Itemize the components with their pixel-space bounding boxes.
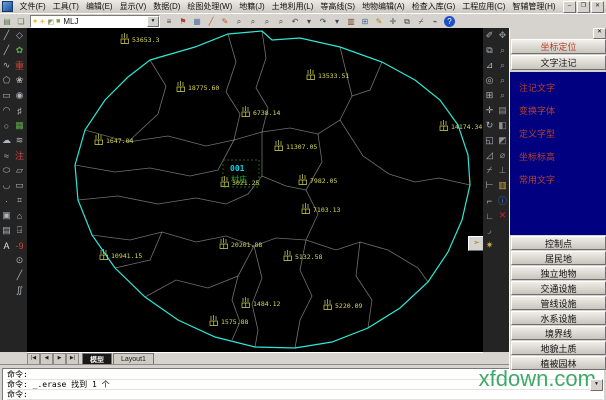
zoom-all-icon[interactable]: ⌕: [274, 15, 288, 28]
copy-icon[interactable]: ⧉: [400, 15, 414, 28]
area-label: 1575.88: [221, 318, 248, 326]
pan-icon[interactable]: ✥: [496, 28, 509, 43]
landuse-symbol-icon: [242, 106, 250, 117]
ellipse-arc-icon[interactable]: ◡: [0, 178, 13, 193]
area-label: 53653.3: [132, 36, 159, 44]
table-icon[interactable]: ⊞: [358, 15, 372, 28]
command-line: 命令:: [7, 370, 603, 380]
layer-combobox-value: MLJ: [63, 17, 78, 26]
arc-icon[interactable]: ◠: [0, 103, 13, 118]
layer-states-icon[interactable]: ❏: [14, 15, 28, 28]
erase-pencil-icon[interactable]: ✐: [483, 28, 496, 43]
area-label: 1484.12: [253, 300, 280, 308]
line-icon[interactable]: ╱: [0, 28, 13, 43]
linetype-icon[interactable]: ≡: [162, 15, 176, 28]
parcel-line: [306, 240, 428, 282]
parcel-line: [262, 176, 306, 190]
area-label: 20201.88: [231, 241, 262, 249]
slope-icon[interactable]: ╱: [13, 268, 26, 283]
shade-icon[interactable]: ◧: [496, 118, 509, 133]
block-insert-icon[interactable]: ▣: [0, 208, 13, 223]
render-icon[interactable]: ◩: [496, 133, 509, 148]
parcel-line: [252, 246, 262, 347]
double-s-icon[interactable]: ∬: [13, 283, 26, 298]
modify-toolbar-column: ✐⧉⊿◎⊞✛↻◱◿⌿⊢⌐∟◞✷: [483, 28, 496, 352]
image-icon[interactable]: ▤: [0, 223, 13, 238]
waves-icon[interactable]: ≋: [13, 133, 26, 148]
layer-tool-buttons: ▤❏: [0, 15, 28, 28]
elevation-icon[interactable]: -9: [13, 238, 26, 253]
grid-icon[interactable]: ♯: [13, 103, 26, 118]
menu-item[interactable]: 绘图处理(W): [184, 1, 236, 12]
minimize-button[interactable]: –: [563, 1, 576, 13]
hatch-icon[interactable]: ⌗: [13, 193, 26, 208]
ucs-icon[interactable]: ⊥: [496, 163, 509, 178]
rect-tool-icon[interactable]: ▭: [13, 178, 26, 193]
view-toolbar-dock: ✥⌕⌕⌕⌕▤◧◩⌀⊥▥ⓘ✕: [496, 28, 509, 352]
layer-on-bulb-icon: ●: [33, 18, 37, 26]
selected-parcel-number: 001: [230, 164, 245, 173]
landuse-symbol-icon: [307, 69, 315, 80]
zoom-window-icon[interactable]: ⌕: [246, 15, 260, 28]
landuse-symbol-icon: [177, 81, 185, 92]
chevron-down-icon[interactable]: ▼: [147, 16, 159, 27]
parcel-map: 53653.318775.6013533.516738.141647.04113…: [27, 28, 483, 352]
parcel-line: [356, 242, 372, 328]
area-label: 14174.34: [451, 123, 482, 131]
parcel-line: [232, 276, 240, 340]
properties-icon[interactable]: ⚑: [176, 15, 190, 28]
circle-icon[interactable]: ○: [0, 118, 13, 133]
station-icon[interactable]: ⍈: [13, 223, 26, 238]
move-icon[interactable]: ✛: [386, 15, 400, 28]
point-icon[interactable]: ·: [0, 193, 13, 208]
command-line: 命令: _.erase 找到 1 个: [7, 380, 603, 390]
command-line: 命令:: [7, 390, 603, 400]
category-button[interactable]: 植被园林: [511, 356, 606, 370]
landuse-symbol-icon: [210, 315, 218, 326]
panel-nav-item[interactable]: 定义字型: [519, 127, 606, 140]
panel-header: ✕: [510, 28, 606, 38]
area-label: 11307.05: [286, 143, 317, 151]
zoom-win-icon[interactable]: ⌕: [496, 58, 509, 73]
extend-icon[interactable]: ⊢: [483, 178, 496, 193]
menu-items: 文件(F)工具(T)编辑(E)显示(V)数据(D)绘图处理(W)地籍(J)土地利…: [16, 1, 559, 12]
menu-item[interactable]: 地物编辑(A): [359, 1, 409, 12]
parcel-line: [92, 232, 306, 246]
annotate-icon[interactable]: 注: [13, 148, 26, 163]
house-icon[interactable]: ⌂: [13, 208, 26, 223]
match-properties-icon[interactable]: ▥: [344, 15, 358, 28]
boundary-icon[interactable]: ▱: [13, 163, 26, 178]
menu-item[interactable]: 编辑(E): [82, 1, 116, 12]
area-label: 18775.60: [188, 84, 219, 92]
layer-freeze-sun-icon: ☀: [39, 18, 45, 26]
parcel-line: [262, 47, 352, 134]
measure-icon[interactable]: ⌀: [496, 148, 509, 163]
panel-top-buttons: 坐标定位文字注记: [510, 38, 606, 70]
area-label: 6738.14: [253, 109, 280, 117]
menu-item[interactable]: 土地利用(L): [268, 1, 317, 12]
curve-icon[interactable]: ∿: [0, 58, 13, 73]
menu-item[interactable]: 工具(T): [49, 1, 82, 12]
zoom-rt-icon[interactable]: ⌕: [496, 43, 509, 58]
parcel-line: [145, 246, 254, 297]
polygon-icon[interactable]: ⬠: [0, 73, 13, 88]
menu-item[interactable]: 工程应用(C): [459, 1, 509, 12]
menu-item[interactable]: 数据(D): [150, 1, 184, 12]
landuse-symbol-icon: [440, 120, 448, 131]
area-label: 13533.51: [318, 72, 349, 80]
layer-state-icons: ●☀◩■: [31, 18, 60, 26]
target-icon[interactable]: ◉: [13, 88, 26, 103]
panel-nav-item[interactable]: 坐标标高: [519, 150, 606, 163]
panel-nav-item[interactable]: 变换字体: [519, 104, 606, 117]
ellipse-icon[interactable]: ⬭: [0, 163, 13, 178]
undo-icon[interactable]: ↶: [288, 15, 302, 28]
delete-red-icon[interactable]: ✕: [496, 208, 509, 223]
menu-item[interactable]: 等高线(S): [317, 1, 359, 12]
parcel-line: [352, 62, 382, 96]
parcel-line: [226, 34, 240, 140]
image-manager-icon[interactable]: ▥: [496, 178, 509, 193]
landuse-symbol-icon: [284, 250, 292, 261]
cass-toolbar-column: ◇✿重❀◉♯▦≋注▱▭⌗⌂⍈-9⊙╱∬: [13, 28, 26, 352]
area-label: 7103.13: [313, 206, 340, 214]
parcel-line: [234, 132, 262, 140]
spline-icon[interactable]: ≈: [0, 148, 13, 163]
revcloud-icon[interactable]: ☁: [0, 133, 13, 148]
drawing-canvas[interactable]: 53653.318775.6013533.516738.141647.04113…: [27, 28, 483, 352]
area-label: 5220.09: [335, 302, 362, 310]
landuse-symbol-icon: [221, 176, 229, 187]
polyline-icon[interactable]: ╱: [0, 43, 13, 58]
draw-toolbar-column: ╱╱∿⬠▭◠○☁≈⬭◡·▣▤A: [0, 28, 13, 352]
offset-icon[interactable]: ◎: [483, 73, 496, 88]
erase-icon[interactable]: ⌁: [428, 15, 442, 28]
screen-menu-panel: ✕ 坐标定位文字注记 注记文字变换字体定义字型坐标标高常用文字 控制点居民地独立…: [509, 28, 606, 370]
layer-lock-icon: ◩: [48, 18, 55, 26]
menu-item[interactable]: 检查入库(G): [408, 1, 459, 12]
area-label: 10941.15: [111, 252, 142, 260]
landuse-symbol-icon: [302, 203, 310, 214]
fillet-icon[interactable]: ◞: [483, 223, 496, 238]
category-button[interactable]: 管线设施: [511, 296, 606, 310]
circle-dot-icon[interactable]: ⊙: [13, 253, 26, 268]
zoom-realtime-icon[interactable]: ⌕: [232, 15, 246, 28]
landuse-symbol-icon: [242, 297, 250, 308]
panel-nav-item[interactable]: 注记文字: [519, 81, 606, 94]
category-button[interactable]: 水系设施: [511, 311, 606, 325]
landuse-symbol-icon: [95, 134, 103, 145]
chevron-down-icon[interactable]: ▼: [590, 379, 603, 391]
redline-pencil-icon[interactable]: ✎: [218, 15, 232, 28]
help-button[interactable]: ?: [444, 16, 455, 27]
chamfer-icon[interactable]: ∟: [483, 208, 496, 223]
coordinate-locate-button[interactable]: 坐标定位: [511, 39, 606, 54]
category-button[interactable]: 居民地: [511, 251, 606, 265]
move-tool-icon[interactable]: ✛: [483, 103, 496, 118]
landuse-symbol-icon: [121, 33, 129, 44]
rectangle-icon[interactable]: ▭: [0, 88, 13, 103]
gear-flower-icon[interactable]: ❀: [13, 73, 26, 88]
mirror-icon[interactable]: ⊿: [483, 58, 496, 73]
edit-pencil-icon[interactable]: ✎: [372, 15, 386, 28]
text-annotation-button[interactable]: 文字注记: [511, 55, 606, 70]
landuse-symbol-icon: [299, 174, 307, 185]
command-history[interactable]: 命令:命令: _.erase 找到 1 个命令:: [2, 368, 604, 400]
left-toolbar-dock: ╱╱∿⬠▭◠○☁≈⬭◡·▣▤A ◇✿重❀◉♯▦≋注▱▭⌗⌂⍈-9⊙╱∬: [0, 28, 27, 352]
osnap-icon[interactable]: ◇: [13, 28, 26, 43]
explode-icon[interactable]: ✷: [483, 238, 496, 253]
restore-button[interactable]: ❐: [577, 1, 590, 13]
layer-color-swatch-icon: ■: [56, 18, 60, 26]
landuse-symbol-icon: [220, 238, 228, 249]
area-label: 5132.58: [295, 253, 322, 261]
modify-toolbar-dock: ✐⧉⊿◎⊞✛↻◱◿⌿⊢⌐∟◞✷: [483, 28, 496, 352]
redraw-icon[interactable]: 重: [13, 58, 26, 73]
draw-line-icon[interactable]: ╱: [204, 15, 218, 28]
menu-item[interactable]: 地籍(J): [236, 1, 268, 12]
parcel-line: [115, 232, 162, 268]
named-views-icon[interactable]: ▤: [496, 103, 509, 118]
area-label: 7982.05: [310, 177, 337, 185]
layer-combobox[interactable]: ●☀◩■ MLJ ▼: [30, 15, 160, 28]
cass-cad-window: 文件(F)工具(T)编辑(E)显示(V)数据(D)绘图处理(W)地籍(J)土地利…: [0, 0, 606, 400]
app-icon: [2, 1, 13, 12]
undo-dropdown-icon[interactable]: ▾: [302, 15, 316, 28]
selected-parcel-name: 村庄: [231, 174, 247, 184]
rotate-icon[interactable]: ↻: [483, 118, 496, 133]
category-button[interactable]: 地貌土质: [511, 341, 606, 355]
menu-bar: 文件(F)工具(T)编辑(E)显示(V)数据(D)绘图处理(W)地籍(J)土地利…: [0, 0, 606, 13]
text-annotation-menu: 注记文字变换字体定义字型坐标标高常用文字: [510, 72, 606, 235]
panel-nav-item[interactable]: 常用文字: [519, 173, 606, 186]
category-button[interactable]: 独立地物: [511, 266, 606, 280]
scale-icon[interactable]: ◱: [483, 133, 496, 148]
close-button[interactable]: ✕: [591, 1, 604, 13]
save-icon[interactable]: ▦: [190, 15, 204, 28]
window-controls: –❐✕: [563, 1, 606, 13]
redo-icon[interactable]: ↷: [316, 15, 330, 28]
copy-object-icon[interactable]: ⧉: [483, 43, 496, 58]
filter-icon[interactable]: ▦: [13, 118, 26, 133]
layer-manager-icon[interactable]: ▤: [0, 15, 14, 28]
trim-icon[interactable]: ⌿: [414, 15, 428, 28]
category-button[interactable]: 交通设施: [511, 281, 606, 295]
toolbar-buttons: ≡⚑▦╱✎⌕⌕⌕⌕↶▾↷▾▥⊞✎✛⧉⌿⌁: [162, 15, 442, 28]
feature-category-buttons: 控制点居民地独立地物交通设施管线设施水系设施境界线地貌土质植被园林: [510, 235, 606, 370]
landuse-symbol-icon: [324, 299, 332, 310]
menu-item[interactable]: 文件(F): [16, 1, 49, 12]
landuse-symbol-icon: [275, 140, 283, 151]
zoom-previous-icon[interactable]: ⌕: [260, 15, 274, 28]
view-toolbar-column: ✥⌕⌕⌕⌕▤◧◩⌀⊥▥ⓘ✕: [496, 28, 509, 352]
category-button[interactable]: 控制点: [511, 236, 606, 250]
trim-tool-icon[interactable]: ⌿: [483, 163, 496, 178]
zoom-ext-icon[interactable]: ⌕: [496, 88, 509, 103]
landuse-symbol-icon: [100, 249, 108, 260]
menu-item[interactable]: 智辅管理(H): [509, 1, 559, 12]
zoom-prev-icon[interactable]: ⌕: [496, 73, 509, 88]
menu-item[interactable]: 显示(V): [116, 1, 150, 12]
category-button[interactable]: 境界线: [511, 326, 606, 340]
close-icon[interactable]: ✕: [593, 28, 606, 39]
plant-icon[interactable]: ✿: [13, 43, 26, 58]
array-icon[interactable]: ⊞: [483, 88, 496, 103]
info-icon[interactable]: ⓘ: [496, 193, 509, 208]
stretch-icon[interactable]: ◿: [483, 148, 496, 163]
text-icon[interactable]: A: [0, 238, 13, 253]
redo-dropdown-icon[interactable]: ▾: [330, 15, 344, 28]
area-label: 1647.04: [106, 137, 133, 145]
break-icon[interactable]: ⌐: [483, 193, 496, 208]
